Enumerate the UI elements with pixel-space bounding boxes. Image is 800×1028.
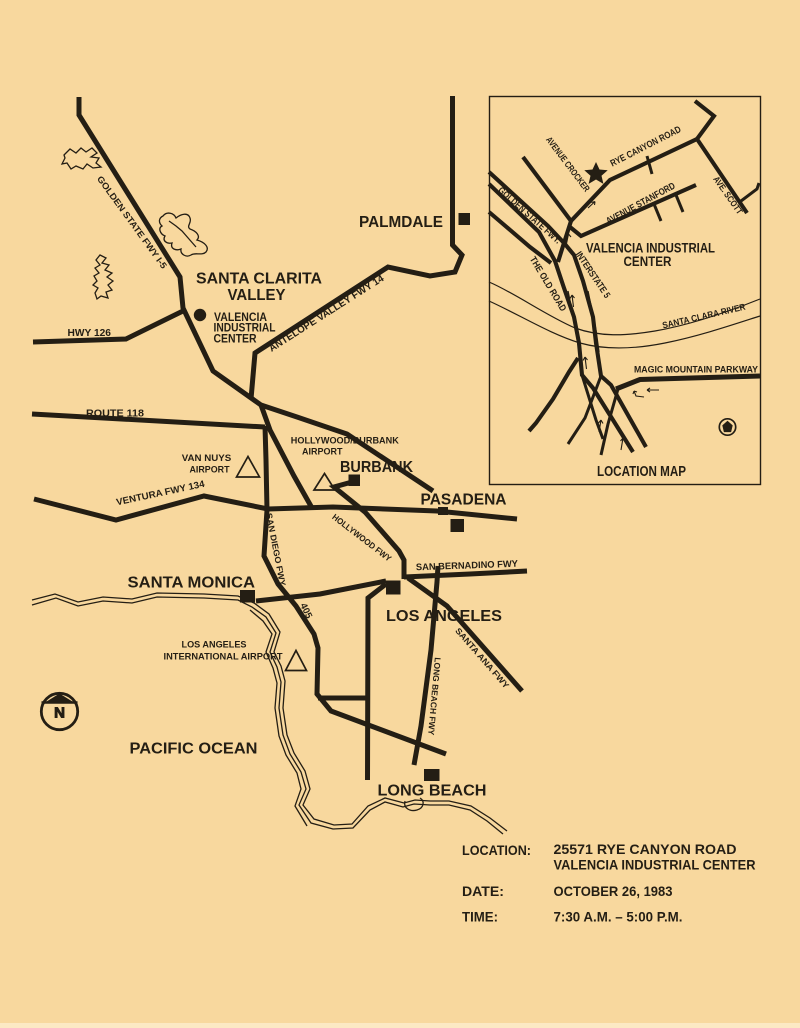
- svg-text:BURBANK: BURBANK: [340, 459, 413, 476]
- svg-text:PALMDALE: PALMDALE: [359, 214, 443, 231]
- svg-text:LOCATION MAP: LOCATION MAP: [597, 464, 686, 480]
- svg-text:HOLLYWOOD/BURBANK: HOLLYWOOD/BURBANK: [291, 436, 399, 447]
- svg-text:SANTA CLARITA: SANTA CLARITA: [196, 271, 322, 288]
- svg-text:AIRPORT: AIRPORT: [190, 465, 230, 476]
- svg-text:N: N: [54, 705, 65, 722]
- svg-text:7:30 A.M. – 5:00 P.M.: 7:30 A.M. – 5:00 P.M.: [554, 909, 683, 925]
- svg-text:HWY 126: HWY 126: [68, 328, 112, 339]
- svg-text:ROUTE 118: ROUTE 118: [86, 409, 144, 420]
- svg-text:25571 RYE CANYON ROAD: 25571 RYE CANYON ROAD: [554, 841, 737, 857]
- svg-text:CENTER: CENTER: [214, 332, 257, 346]
- svg-text:INTERNATIONAL AIRPORT: INTERNATIONAL AIRPORT: [164, 652, 283, 663]
- svg-text:TIME:: TIME:: [462, 909, 498, 925]
- svg-text:N: N: [725, 424, 731, 433]
- svg-text:OCTOBER 26, 1983: OCTOBER 26, 1983: [554, 883, 673, 899]
- svg-text:VAN NUYS: VAN NUYS: [182, 453, 232, 464]
- svg-text:PACIFIC OCEAN: PACIFIC OCEAN: [130, 741, 258, 758]
- svg-text:LONG BEACH: LONG BEACH: [378, 783, 487, 800]
- svg-text:SANTA MONICA: SANTA MONICA: [128, 575, 256, 592]
- svg-text:VALENCIA INDUSTRIAL CENTER: VALENCIA INDUSTRIAL CENTER: [554, 857, 756, 873]
- svg-text:LOS ANGELES: LOS ANGELES: [182, 640, 247, 651]
- svg-text:VALLEY: VALLEY: [228, 287, 286, 304]
- svg-text:DATE:: DATE:: [462, 883, 504, 899]
- svg-text:PASADENA: PASADENA: [421, 492, 507, 509]
- svg-text:AIRPORT: AIRPORT: [302, 447, 343, 458]
- svg-text:LOS ANGELES: LOS ANGELES: [386, 608, 502, 625]
- svg-text:LOCATION:: LOCATION:: [462, 842, 531, 858]
- svg-text:CENTER: CENTER: [624, 254, 672, 269]
- svg-text:MAGIC MOUNTAIN PARKWAY: MAGIC MOUNTAIN PARKWAY: [634, 365, 759, 376]
